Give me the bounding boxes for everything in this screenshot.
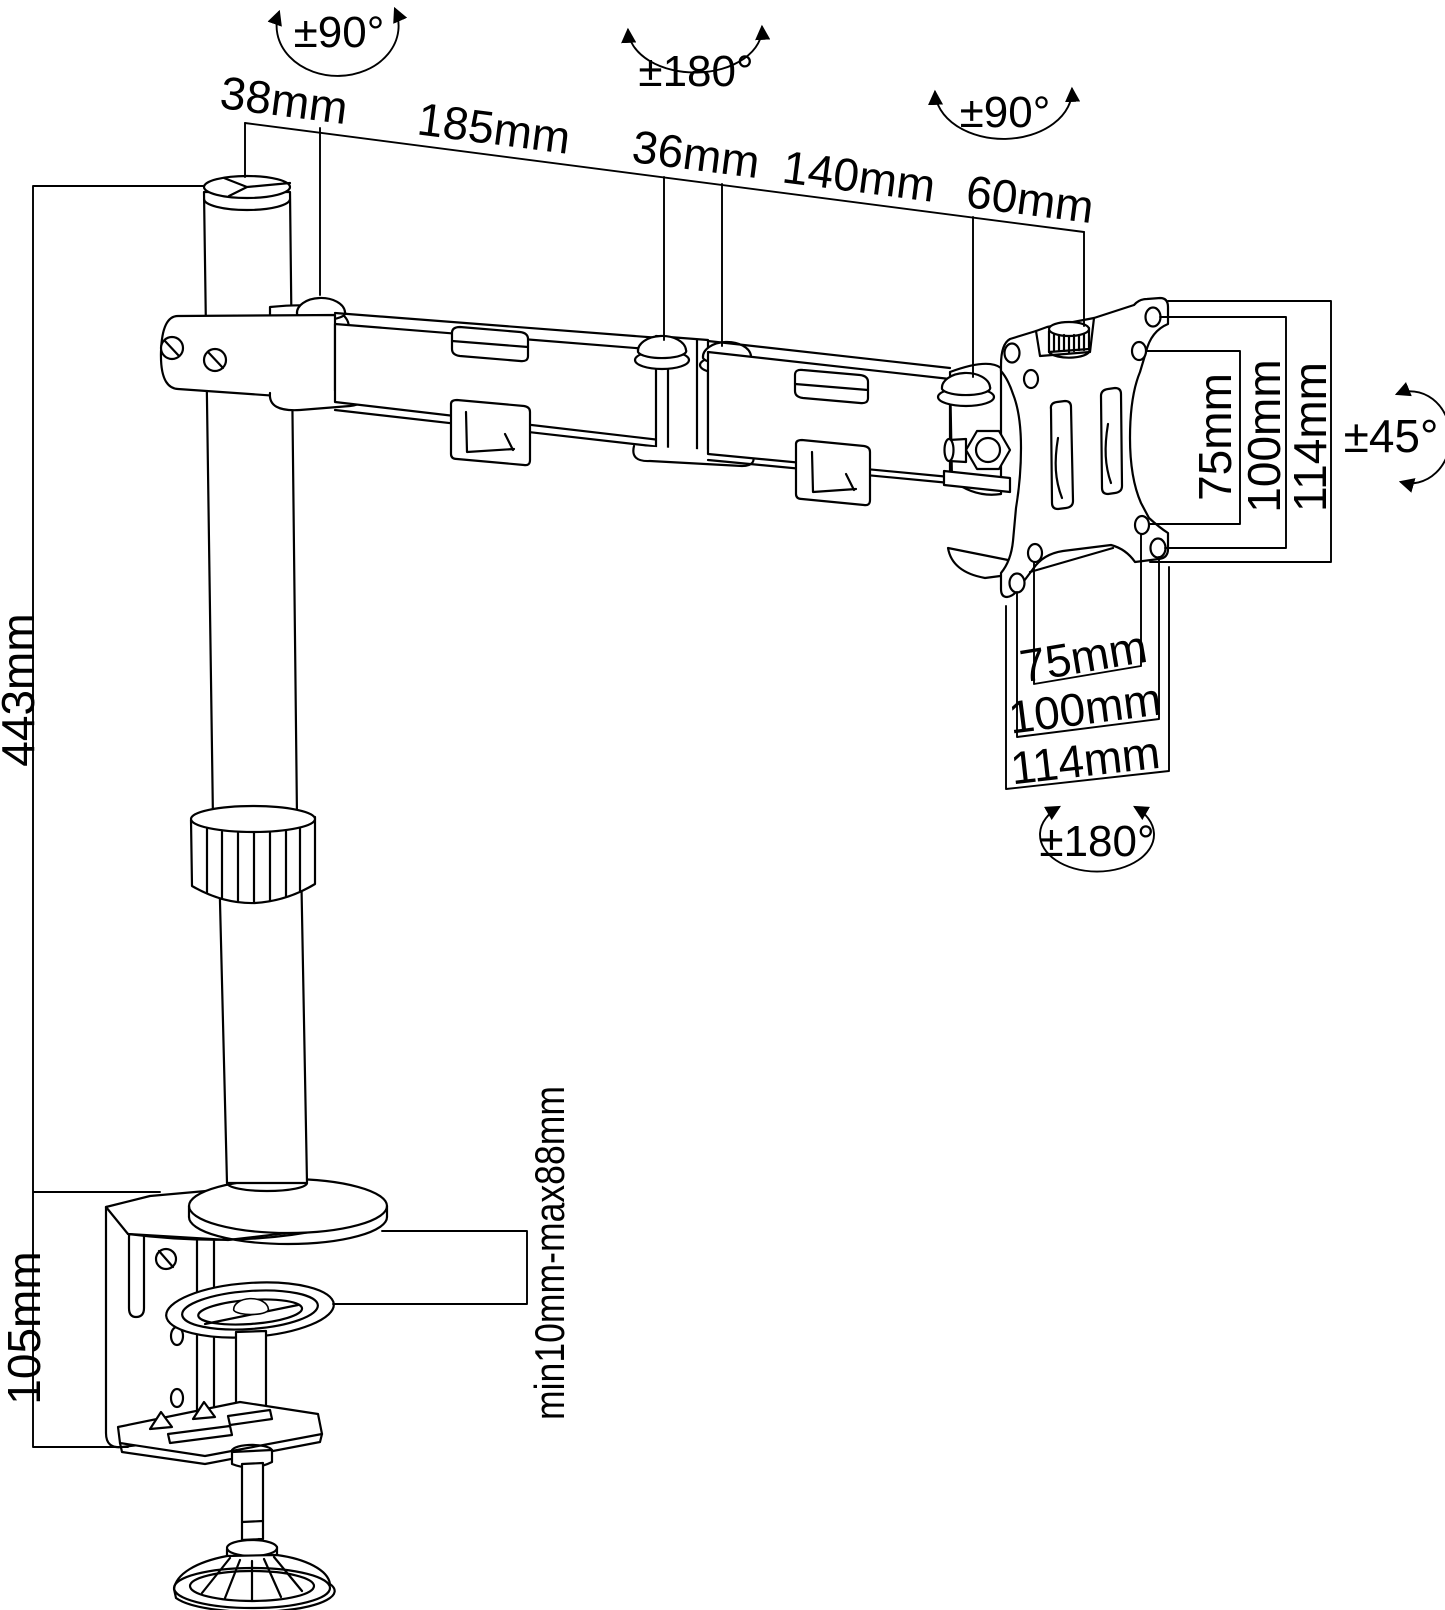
monitor-arm-dimension-diagram: ±90° ±180° ±90° ±45° ±180° 38mm 185mm 36… (0, 0, 1445, 1610)
dim-label-end-offset: 60mm (963, 165, 1096, 233)
vesa-slot (1051, 401, 1073, 509)
dim-label-vesa-side-100: 100mm (1238, 359, 1290, 512)
rotation-label-mid-joint: ±180° (638, 47, 753, 96)
dim-label-clamp-height: 105mm (0, 1251, 50, 1404)
cable-clip-hook (451, 400, 530, 465)
clamp-rod-lower (242, 1463, 263, 1540)
clamp-slot (129, 1228, 144, 1317)
pole-adjustment-ring (191, 806, 315, 903)
desk-disc (189, 1179, 387, 1233)
cable-clip-hook (796, 440, 870, 505)
pole-upper-tube (204, 192, 297, 820)
clamp-knob (174, 1540, 335, 1610)
dim-label-arm1: 185mm (415, 92, 574, 163)
vesa-plate (945, 298, 1169, 597)
rotation-label-end-joint: ±90° (960, 88, 1051, 137)
vesa-hole (1146, 308, 1161, 327)
dim-label-vesa-side-114: 114mm (1284, 362, 1336, 512)
vesa-hole (1010, 574, 1025, 593)
vesa-hole (1024, 370, 1038, 388)
arm-collar (161, 315, 335, 400)
diagram-canvas: ±90° ±180° ±90° ±45° ±180° 38mm 185mm 36… (0, 0, 1445, 1610)
pole-lower-tube (219, 860, 307, 1183)
arm-end-joint (938, 364, 1010, 578)
vesa-slot (1101, 388, 1122, 494)
dim-label-arm2: 140mm (780, 140, 939, 211)
vesa-hole (1151, 539, 1166, 558)
vesa-hole (1135, 516, 1149, 534)
dim-label-desk-thickness: min10mm-max88mm (526, 1086, 573, 1420)
dim-label-joint-width: 36mm (629, 120, 762, 188)
rotation-label-tilt: ±45° (1344, 410, 1439, 462)
vesa-hole (1132, 342, 1146, 360)
rotation-label-pole: ±90° (294, 8, 385, 57)
desk-thickness-lines (333, 1231, 527, 1304)
dim-label-pole-height: 443mm (0, 613, 44, 766)
vesa-hole (1005, 344, 1020, 363)
rotation-label-plate: ±180° (1039, 817, 1154, 866)
vesa-hole (1028, 544, 1042, 562)
dim-label-vesa-side-75: 75mm (1189, 373, 1241, 501)
